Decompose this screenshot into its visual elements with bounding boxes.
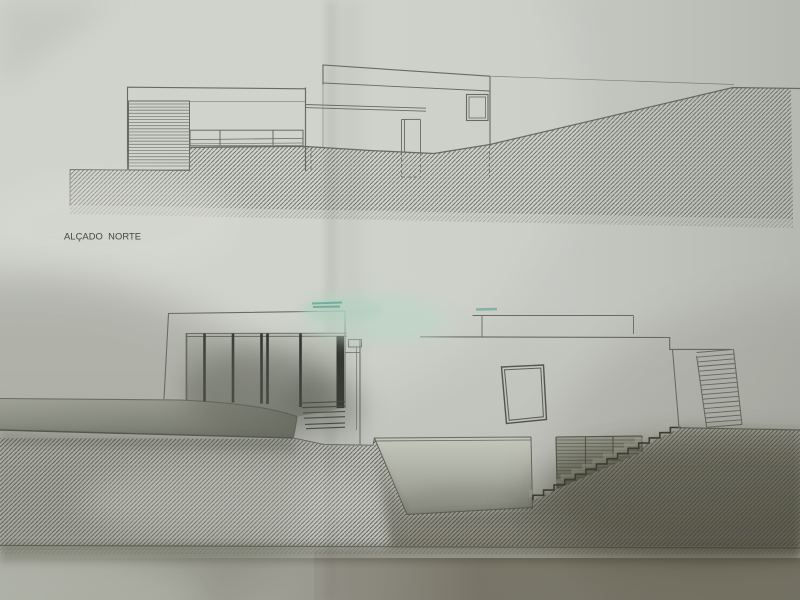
svg-text:ALÇADO NORTE: ALÇADO NORTE [64, 231, 141, 242]
